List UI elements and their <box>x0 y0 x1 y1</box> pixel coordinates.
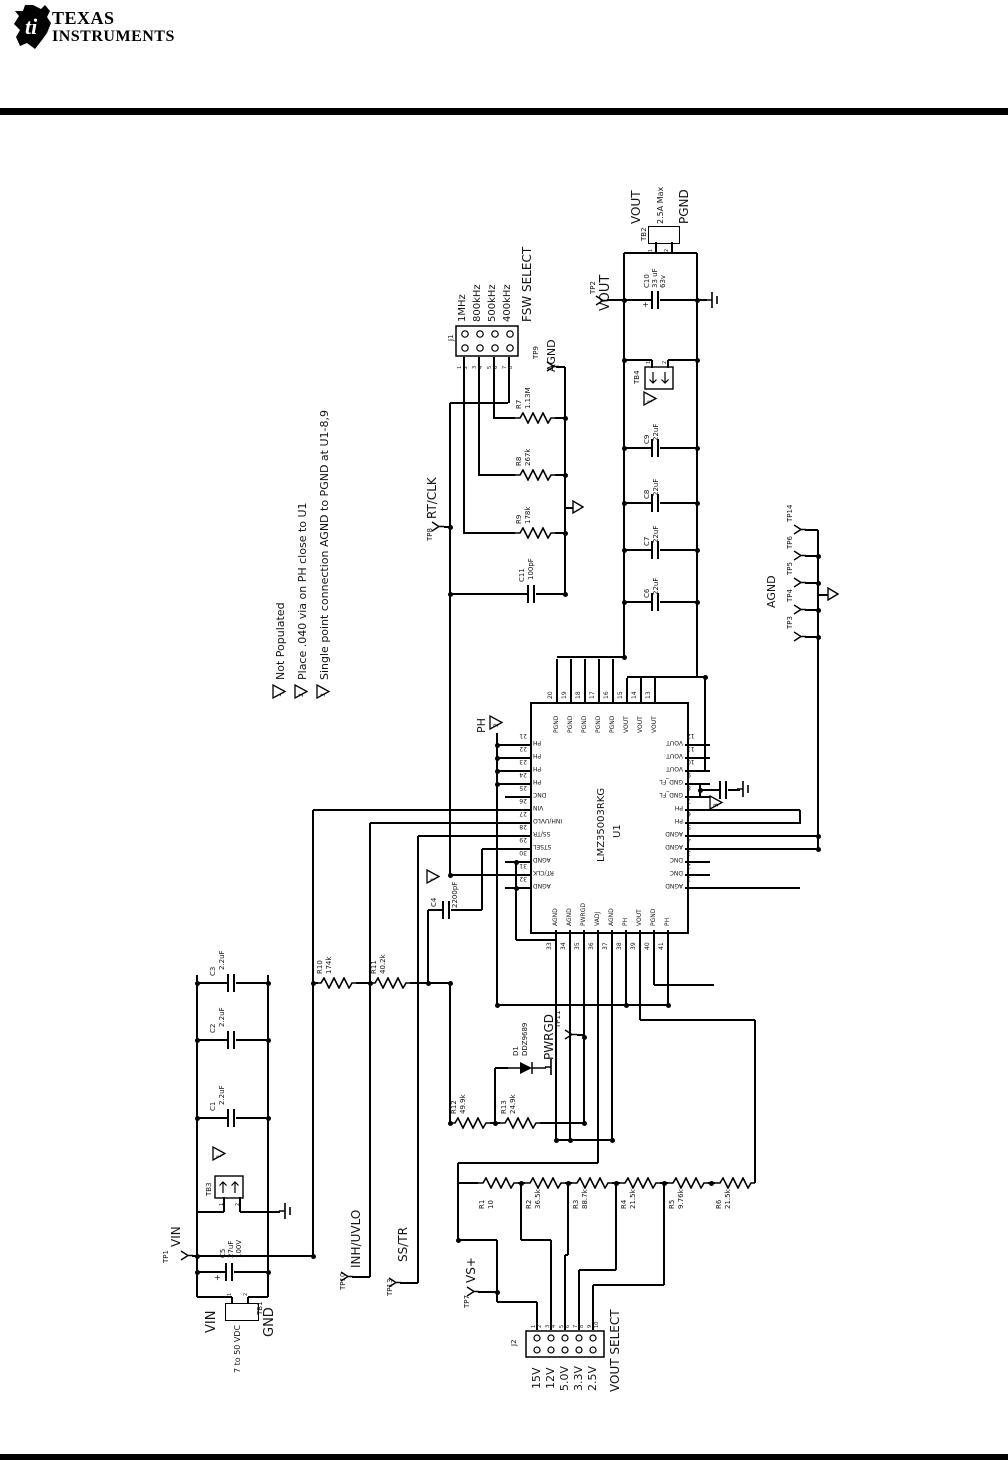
wire <box>567 1183 569 1255</box>
note-triangle-icon <box>212 1146 227 1161</box>
ic-pin-number: 40 <box>645 942 651 950</box>
wire <box>495 1067 508 1069</box>
ic-pin-number: 32 <box>509 875 527 881</box>
junction-dot <box>448 592 453 597</box>
tb2-ref: TB2 <box>641 227 648 241</box>
wire <box>197 1296 232 1298</box>
ic-pin-name: DNC <box>639 856 683 862</box>
pgnd-symbol-icon <box>279 1202 294 1220</box>
junction-dot <box>816 554 821 559</box>
note-triangle-icon <box>426 869 441 884</box>
diode-part: DDZ9689 <box>522 1023 529 1056</box>
wire <box>234 1271 268 1273</box>
wire <box>653 930 655 950</box>
ic-pin-number: 11 <box>687 745 705 751</box>
ic-pin-name: PGND <box>582 716 588 733</box>
note-text: Single point connection AGND to PGND at … <box>319 410 330 680</box>
wire <box>236 1039 268 1041</box>
wire <box>660 549 697 551</box>
ic-pin-number: 15 <box>618 691 624 699</box>
ic-pin-number: 16 <box>604 691 610 699</box>
ic-pin-number: 7 <box>687 797 705 803</box>
resistor-symbol <box>316 977 356 989</box>
fsw-option: 1MHz <box>458 294 468 322</box>
wire <box>653 950 655 985</box>
cap-ref: C10 <box>644 274 651 288</box>
wire <box>248 1296 268 1298</box>
schematic-page: ti TEXAS INSTRUMENTS VOUTTP2TB2VOUT2.5A … <box>0 0 1008 1472</box>
ph-net-label: PH <box>476 718 487 733</box>
wire <box>240 1211 268 1213</box>
junction-dot <box>195 1038 200 1043</box>
wire <box>197 1211 224 1213</box>
wire <box>533 585 535 603</box>
ic-part-label: LMZ35003RKG <box>597 788 607 862</box>
tb1-gnd-label: GND <box>263 1307 276 1337</box>
resistor-symbol <box>515 412 555 424</box>
testpoint-icon <box>793 524 806 535</box>
svg-text:ti: ti <box>25 14 38 39</box>
wire <box>557 656 624 658</box>
terminal-block-tb2 <box>648 226 680 244</box>
j1-pin-num: 6 <box>494 366 499 369</box>
ic-pin-number: 24 <box>509 771 527 777</box>
wire <box>451 909 482 911</box>
net-label-vin: VIN <box>170 1226 182 1247</box>
tp4-ref: TP4 <box>787 589 794 602</box>
wire <box>550 1240 552 1330</box>
ic-pin-name: VOUT <box>639 752 683 758</box>
junction-dot <box>448 873 453 878</box>
ic-pin-name: AGND <box>533 882 577 888</box>
cap-voltage: 63v <box>660 275 667 288</box>
ic-pin-name: AGND <box>639 843 683 849</box>
wire <box>417 836 419 1283</box>
tb3-ref: TB3 <box>206 1182 213 1196</box>
wire <box>231 1263 233 1281</box>
junction-dot <box>554 1138 559 1143</box>
tb4-pin-num: 2 <box>663 361 668 364</box>
resistor-value: 36.5k <box>535 1189 542 1209</box>
cap-ref: C6 <box>644 589 651 598</box>
wire <box>516 939 556 941</box>
wire <box>663 1183 665 1285</box>
resistor-value: 21.5k <box>725 1189 732 1209</box>
cap-value: 22uF <box>653 479 660 496</box>
junction-dot <box>622 501 627 506</box>
wire <box>570 659 572 702</box>
fsw-option: 800kHz <box>473 284 483 322</box>
cap-value: 2.2uF <box>219 950 226 970</box>
tp14-ref: TP14 <box>787 505 794 522</box>
vout-option: 3.3V <box>573 1366 584 1391</box>
ic-pin-name: INH/UVLO <box>533 817 577 823</box>
ic-pin-number: 12 <box>687 732 705 738</box>
ic-pin-number: 10 <box>687 758 705 764</box>
tb1-pin-num: 1 <box>228 1293 233 1296</box>
vout-option: 12V <box>545 1367 556 1389</box>
resistor-symbol <box>620 1177 660 1189</box>
net-label-pwrgd: PWRGD <box>543 1014 555 1060</box>
ic-pin-name: PWRGD <box>581 903 587 926</box>
terminal-block-tb1 <box>225 1303 259 1321</box>
wire <box>227 1031 229 1049</box>
tb4-ref: TB4 <box>634 370 641 384</box>
wire <box>615 1183 617 1270</box>
wire <box>627 676 705 678</box>
junction-dot <box>448 981 453 986</box>
resistor-value: 178k <box>525 507 532 524</box>
wire <box>197 1117 228 1119</box>
wire <box>651 541 653 559</box>
ic-pin-number: 19 <box>562 691 568 699</box>
testpoint-icon <box>340 1271 353 1282</box>
ic-pin-number: 29 <box>509 836 527 842</box>
resistor-value: 267k <box>525 449 532 466</box>
ic-pin-name: PGND <box>651 909 657 926</box>
resistor-ref: R9 <box>516 515 523 524</box>
junction-dot <box>622 358 627 363</box>
wire <box>625 930 627 950</box>
resistor-value: 24.9k <box>510 1094 517 1114</box>
wire <box>236 1117 268 1119</box>
wire <box>655 242 657 253</box>
wire <box>478 474 515 476</box>
resistor-ref: R1 <box>479 1200 486 1209</box>
cap-value: 22uF <box>653 578 660 595</box>
junction-dot <box>195 981 200 986</box>
ic-ref-label: U1 <box>613 824 623 838</box>
ic-pin-number: 26 <box>509 797 527 803</box>
ic-pin-name: PGND <box>568 716 574 733</box>
junction-dot <box>495 756 500 761</box>
wire <box>660 447 697 449</box>
ic-pin-number: 23 <box>509 758 527 764</box>
wire <box>481 849 483 910</box>
junction-dot <box>816 834 821 839</box>
junction-dot <box>610 1138 615 1143</box>
testpoint-icon <box>793 631 806 642</box>
wire <box>623 253 625 657</box>
testpoint-icon <box>793 577 806 588</box>
wire <box>556 1139 612 1141</box>
ic-pin-number: 34 <box>561 942 567 950</box>
junction-dot <box>495 782 500 787</box>
tp5-ref: TP5 <box>787 562 794 575</box>
cap-value: 22uF <box>653 526 660 543</box>
testpoint-icon <box>466 1286 479 1297</box>
cap-ref: C11 <box>519 568 526 582</box>
resistor-symbol <box>668 1177 708 1189</box>
ic-pin-name: GND_FL <box>639 791 683 797</box>
wire <box>657 494 659 512</box>
wire <box>754 1020 756 1183</box>
junction-dot <box>695 501 700 506</box>
resistor-ref: R11 <box>371 960 378 974</box>
ic-pin-name: VIN <box>533 804 577 810</box>
ic-pin-number: 14 <box>632 691 638 699</box>
ic-pin-number: 37 <box>603 942 609 950</box>
tb4-pin-num: 1 <box>647 361 652 364</box>
junction-dot <box>622 446 627 451</box>
junction-dot <box>495 1290 500 1295</box>
wire <box>624 447 652 449</box>
resistor-ref: R5 <box>669 1200 676 1209</box>
wire <box>611 950 613 1140</box>
wire <box>651 439 653 457</box>
resistor-ref: R8 <box>516 457 523 466</box>
wire <box>651 593 653 611</box>
ic-pin-name: VOUT <box>638 716 644 733</box>
resistor-ref: R3 <box>573 1200 580 1209</box>
note-text: Not Populated <box>275 602 286 680</box>
wire <box>448 901 450 919</box>
resistor-symbol <box>450 1117 490 1129</box>
junction-dot <box>311 1254 316 1259</box>
cap-value: 27uF <box>228 1241 235 1258</box>
j2-header-icon <box>525 1330 605 1358</box>
wire <box>612 659 614 702</box>
wire <box>197 1271 226 1273</box>
resistor-ref: R13 <box>501 1100 508 1114</box>
ic-pin-name: AGND <box>553 908 559 926</box>
polarity-plus: + <box>214 1274 222 1281</box>
junction-dot <box>195 1270 200 1275</box>
wire <box>583 930 585 950</box>
resistor-ref: R10 <box>317 960 324 974</box>
wire <box>418 835 505 837</box>
testpoint-icon <box>546 361 559 372</box>
diode-ref: D1 <box>513 1046 520 1056</box>
note-triangle-icon <box>709 795 724 810</box>
wire <box>550 1122 584 1124</box>
ic-pin-name: PH <box>639 817 683 823</box>
cap-ref: C7 <box>644 537 651 546</box>
wire <box>725 781 727 799</box>
agnd-symbol-icon <box>827 587 839 601</box>
terminal-block-tb4 <box>644 366 674 390</box>
note-triangle-icon <box>272 684 287 699</box>
junction-dot <box>666 1003 671 1008</box>
junction-dot <box>622 548 627 553</box>
wire <box>657 291 659 309</box>
vout-option: 2.5V <box>587 1366 598 1391</box>
wire <box>668 359 697 361</box>
j1-pin-num: 8 <box>509 366 514 369</box>
wire <box>428 909 443 911</box>
tb3-pin-num: 2 <box>236 1203 241 1206</box>
ic-pin-name: PH <box>533 778 577 784</box>
net-label-vsplus: VS+ <box>465 1257 477 1283</box>
j1-pin-num: 4 <box>479 366 484 369</box>
top-rule <box>0 108 1008 115</box>
junction-dot <box>622 298 627 303</box>
wire <box>624 601 652 603</box>
ic-pin-name: RT/CLK <box>533 869 577 875</box>
resistor-ref: R2 <box>526 1200 533 1209</box>
junction-dot <box>709 1181 714 1186</box>
j2-pin-num: 2 <box>538 1325 543 1328</box>
ic-pin-name: AGND <box>533 856 577 862</box>
vout-option: 5.0V <box>559 1366 570 1391</box>
resistor-ref: R12 <box>451 1100 458 1114</box>
wire <box>400 1282 418 1284</box>
tp9-ref: TP9 <box>533 346 540 359</box>
junction-dot <box>495 769 500 774</box>
brand-line2: INSTRUMENTS <box>52 28 175 46</box>
wire <box>817 530 819 849</box>
wire <box>493 417 515 419</box>
ic-pin-number: 22 <box>509 745 527 751</box>
wire <box>657 593 659 611</box>
ic-pin-number: 31 <box>509 862 527 868</box>
wire <box>799 810 801 824</box>
junction-dot <box>566 1181 571 1186</box>
ic-pin-name: PH <box>533 752 577 758</box>
agnd-symbol-icon <box>572 500 584 514</box>
wire <box>227 974 229 992</box>
ic-pin-number: 33 <box>547 942 553 950</box>
wire <box>312 810 314 1256</box>
junction-dot <box>662 1181 667 1186</box>
ic-pin-number: 35 <box>575 942 581 950</box>
wire <box>540 1122 550 1124</box>
junction-dot <box>695 298 700 303</box>
j2-pin-num: 8 <box>580 1325 585 1328</box>
note-triangle-icon <box>643 391 658 406</box>
wire <box>527 585 529 603</box>
ic-pin-number: 20 <box>548 691 554 699</box>
wire <box>805 529 818 531</box>
wire <box>639 950 641 1020</box>
vout-select-title: VOUT SELECT <box>609 1309 621 1392</box>
junction-dot <box>816 847 821 852</box>
ic-pin-number: 5 <box>687 823 705 829</box>
wire <box>611 930 613 950</box>
wire <box>197 1255 313 1257</box>
wire <box>564 1255 566 1330</box>
tp1-ref: TP1 <box>163 1250 170 1263</box>
fsw-option: 500kHz <box>488 284 498 322</box>
testpoint-icon <box>595 295 608 306</box>
ic-pin-name: PH <box>639 804 683 810</box>
junction-dot <box>622 655 627 660</box>
pgnd-symbol-icon <box>545 1058 560 1076</box>
ic-pin-name: PH <box>623 918 629 926</box>
junction-dot <box>495 743 500 748</box>
ic-pin-number: 18 <box>576 691 582 699</box>
resistor-value: 49.9k <box>460 1094 467 1114</box>
net-label-sstr: SS/TR <box>397 1227 409 1262</box>
wire <box>625 950 627 1005</box>
cap-value: 2.2uF <box>219 1007 226 1027</box>
ic-pin-name: VOUT <box>652 716 658 733</box>
junction-dot <box>816 581 821 586</box>
tp3-ref: TP3 <box>787 616 794 629</box>
ic-pin-name: AGND <box>639 882 683 888</box>
junction-dot <box>493 1121 498 1126</box>
junction-dot <box>448 525 453 530</box>
wire <box>442 901 444 919</box>
junction-dot <box>695 358 700 363</box>
wire <box>657 541 659 559</box>
ic-pin-number: 4 <box>687 836 705 842</box>
wire <box>352 1276 370 1278</box>
j2-pin-num: 4 <box>552 1325 557 1328</box>
wire <box>569 930 571 950</box>
wire <box>227 1109 229 1127</box>
wire <box>449 403 451 875</box>
wire <box>520 1183 522 1240</box>
wire <box>197 982 228 984</box>
tp6-ref: TP6 <box>787 536 794 549</box>
junction-dot <box>624 1003 629 1008</box>
ic-pin-number: 25 <box>509 784 527 790</box>
wire <box>593 1284 664 1286</box>
ic-pin-number: 38 <box>617 942 623 950</box>
wire <box>457 1163 459 1240</box>
ic-pin-number: 9 <box>687 771 705 777</box>
resistor-symbol <box>515 469 555 481</box>
cap-ref: C2 <box>210 1024 217 1033</box>
tb3-pin-num: 1 <box>220 1203 225 1206</box>
junction-dot <box>703 675 708 680</box>
resistor-symbol <box>370 977 410 989</box>
ic-pin-number: 3 <box>687 849 705 855</box>
wire <box>508 357 510 403</box>
junction-dot <box>495 1003 500 1008</box>
j1-pin-num: 2 <box>464 366 469 369</box>
wire <box>225 1263 227 1281</box>
pgnd-symbol-icon <box>706 291 721 309</box>
junction-dot <box>582 1121 587 1126</box>
resistor-symbol <box>715 1177 755 1189</box>
wire <box>536 593 565 595</box>
resistor-value: 21.5k <box>630 1189 637 1209</box>
cap-ref: C3 <box>210 967 217 976</box>
ic-pin-number: 30 <box>509 849 527 855</box>
resistor-value: 10 <box>488 1200 495 1209</box>
j2-pin-num: 6 <box>566 1325 571 1328</box>
note-triangle-icon <box>294 684 309 699</box>
resistor-symbol <box>572 1177 612 1189</box>
wire <box>369 823 371 1277</box>
wire <box>370 822 505 824</box>
cap-value: 2200pF <box>452 882 459 908</box>
wire <box>660 502 697 504</box>
wire <box>233 1109 235 1127</box>
cap-value: 33 uF <box>652 268 659 288</box>
cap-value: 22uF <box>653 424 660 441</box>
junction-dot <box>266 1038 271 1043</box>
ic-pin-number: 41 <box>659 942 665 950</box>
cap-ref: C9 <box>644 435 651 444</box>
tb1-vin-label: VIN <box>205 1311 218 1333</box>
wire <box>197 1039 228 1041</box>
resistor-ref: R7 <box>516 400 523 409</box>
wire <box>564 367 566 594</box>
j1-ref: J1 <box>448 334 455 341</box>
ic-pin-name: AGND <box>609 908 615 926</box>
ic-pin-name: VOUT <box>639 765 683 771</box>
wire <box>196 975 198 1297</box>
net-label-rtclk: RT/CLK <box>426 477 438 519</box>
ic-pin-name: VOUT <box>639 739 683 745</box>
diode-symbol-icon <box>508 1061 546 1075</box>
ic-pin-number: 36 <box>589 942 595 950</box>
junction-dot <box>695 446 700 451</box>
wire <box>458 1182 478 1184</box>
